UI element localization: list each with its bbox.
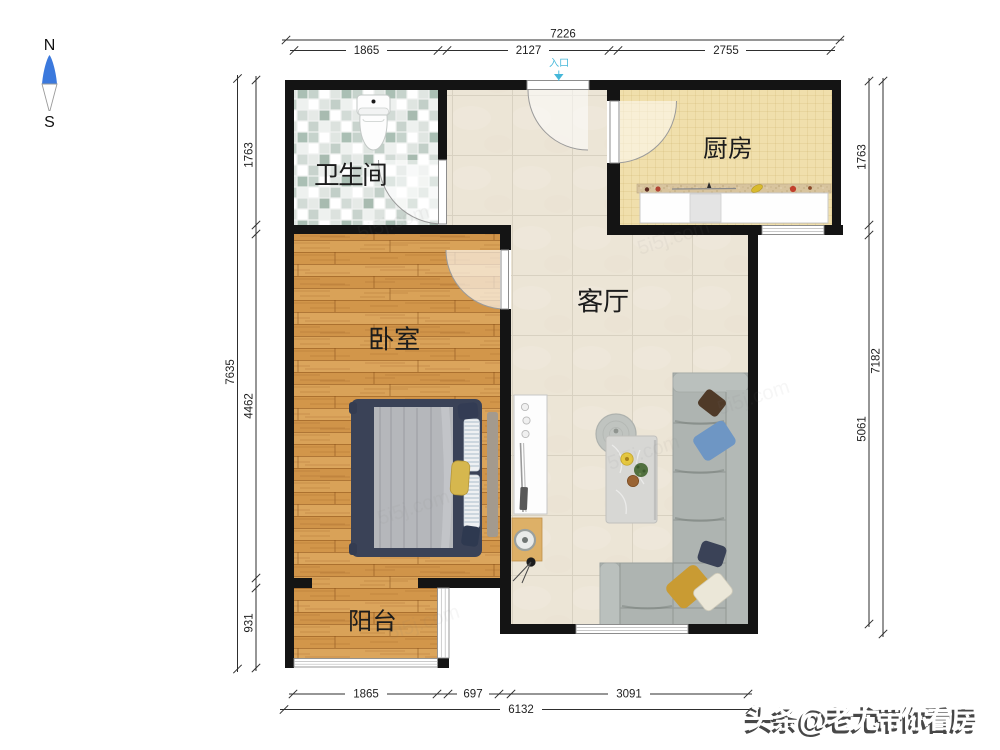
svg-text:6132: 6132 <box>508 704 534 716</box>
svg-text:N: N <box>44 37 56 54</box>
svg-text:1763: 1763 <box>857 144 869 170</box>
svg-text:1865: 1865 <box>353 689 379 701</box>
svg-text:697: 697 <box>463 689 482 701</box>
svg-text:S: S <box>44 114 55 131</box>
svg-text:7635: 7635 <box>225 359 237 385</box>
svg-text:7182: 7182 <box>871 348 883 374</box>
svg-text:2127: 2127 <box>516 45 542 57</box>
svg-text:3091: 3091 <box>616 689 642 701</box>
svg-text:931: 931 <box>244 613 256 632</box>
svg-text:2755: 2755 <box>713 45 739 57</box>
svg-text:1865: 1865 <box>354 45 380 57</box>
svg-text:7226: 7226 <box>550 29 576 41</box>
svg-text:5061: 5061 <box>857 416 869 442</box>
svg-text:4462: 4462 <box>244 393 256 419</box>
svg-text:1763: 1763 <box>244 142 256 168</box>
svg-text:@: @ <box>799 701 829 736</box>
